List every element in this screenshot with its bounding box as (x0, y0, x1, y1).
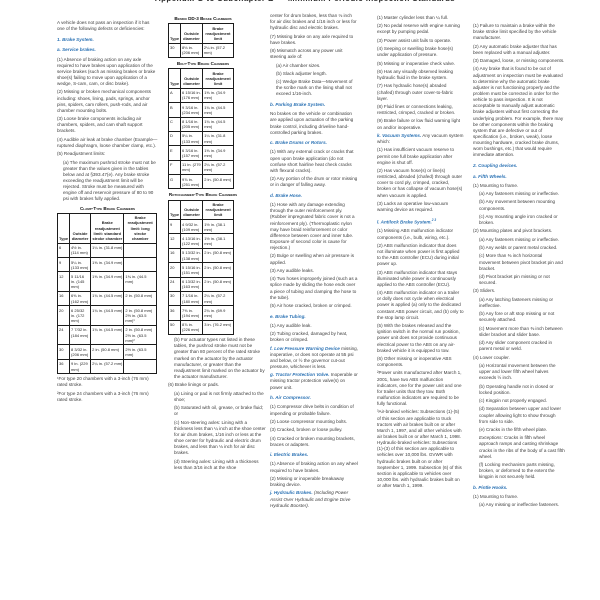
table-cell: 2 in. (50.8 mm) (91, 345, 124, 359)
data-table: TypeOutside diameterBrake readjustment l… (168, 68, 234, 189)
table-cell: B (169, 103, 181, 117)
table-cell: 1½ in. (38.1 mm) (203, 234, 234, 248)
table-row: 95¼ in. (133 mm)1⅜ in. (34.9 mm) (58, 258, 157, 272)
table-title: Bendix DD-3 Brake Chambers (168, 16, 238, 22)
table-cell: 1⅜ in. (34.9 mm) (91, 272, 124, 292)
table-row: A6 15/16 in. (176 mm)1⅜ in. (34.9 mm) (169, 88, 234, 102)
table-cell: 2 in. (50.8 mm) (203, 175, 234, 189)
paragraph: (c) Movement more than ⅜ inch between sl… (479, 326, 565, 338)
paragraph: (3) Lacks an operative low-vacuum warnin… (377, 201, 464, 213)
table-cell: 2¼ in. (57.2 mm) (91, 359, 124, 373)
table-cell: 8⅛ in. (206 mm) (181, 43, 203, 57)
table-cell: 7 7/32 in. (184 mm) (70, 325, 91, 345)
table-cell (124, 258, 157, 272)
paragraph: (1) Mounting to frame. (473, 494, 565, 500)
table-cell: 2¼ in. (57.2 mm) (202, 43, 233, 57)
paragraph: (1) Absence of braking action on any axl… (57, 57, 158, 88)
table-cell: 6 15/16 in. (176 mm) (181, 88, 203, 102)
table-cell: 2 in. (50.8 mm) 2½ in. (63.5 mm)² (124, 325, 157, 345)
paragraph: (a) Air chamber sizes. (276, 63, 358, 69)
paragraph: (1) Mounting to frame. (473, 183, 565, 189)
paragraph: (b) For actuator types not listed in the… (174, 337, 267, 380)
table-cell: 1⅜ in. (34.9 mm) (203, 88, 234, 102)
paragraph: (9) Brake failure or low fluid warning l… (377, 118, 464, 130)
paragraph: (4) Cracked or broken mounting brackets,… (270, 436, 358, 448)
table-cell: 1¾ in. (44.5 mm) (203, 103, 234, 117)
table-header-cell: Brake readjustment limit: long stroke ch… (124, 213, 157, 243)
table-header-row: TypeOutside diameterBrake readjustment l… (58, 213, 157, 243)
table-row: 166⅜ in. (162 mm)1¾ in. (44.5 mm)2 in. (… (58, 291, 157, 305)
section-heading: b. Parking Brake System. (270, 102, 358, 108)
paragraph: (a) Any fasteners missing or ineffective… (479, 191, 565, 197)
section-heading: 1. Brake System. (57, 37, 158, 43)
table-footnote: ³Air-braked vehicles: Subsections (1)-(5… (377, 409, 464, 489)
table-cell: 2¼ in. (57.2 mm) (203, 291, 234, 305)
table-row: 125 11/16 in. (145 mm)1⅜ in. (34.9 mm)1¾… (58, 272, 157, 292)
table-cell: 20 (169, 263, 181, 277)
table-title: Bolt-Type Brake Chambers (168, 61, 238, 67)
table-row: F11 in. (279 mm)2¼ in. (57.2 mm) (169, 160, 234, 174)
table-header-cell: Type (169, 200, 181, 220)
paragraph: (c) More than ⅜ inch horizontal movement… (479, 253, 565, 271)
table-header-cell: Brake readjustment limit (203, 200, 234, 220)
table-row: 165 13/32 in. (138 mm)2 in. (50.8 mm) (169, 248, 234, 262)
table-cell: A (169, 88, 181, 102)
paragraph: (c) Any mounting angle iron cracked or b… (479, 214, 565, 226)
table-cell: 20 (58, 306, 70, 326)
table-cell: 3 in. (76.2 mm) (203, 320, 234, 334)
paragraph: (4) Two hoses improperly joined (such as… (270, 276, 358, 301)
paragraph: (3) Power assist unit fails to operate. (377, 38, 464, 44)
paragraph: (1) Missing ABS malfunction indicator co… (377, 228, 464, 240)
table-row: 308⅛ in. (206 mm)2¼ in. (57.2 mm) (169, 43, 234, 57)
table-cell: 8⅞ in. (226 mm) (181, 320, 203, 334)
table-cell: 5 13/32 in. (138 mm) (181, 248, 203, 262)
paragraph: (b) Any fore or aft stop missing or not … (479, 311, 565, 323)
paragraph: (3) Sliders. (473, 288, 565, 294)
table-cell: 1⅜ in. (34.9 mm) (91, 258, 124, 272)
paragraph: (3) ABS malfunction indicator that stays… (377, 270, 464, 288)
paragraph: (4) Any brake that is found to be out of… (473, 66, 565, 158)
table-row: G9⅞ in. (251 mm)2 in. (50.8 mm) (169, 175, 234, 189)
table-cell: 2 in. (50.8 mm) (124, 291, 157, 305)
column-4: (1) Master cylinder less than ¼ full.(2)… (377, 0, 464, 491)
paragraph: (5) Air hose cracked, broken or crimped. (270, 303, 358, 309)
paragraph: (1) Any audible leak. (270, 323, 358, 329)
paragraph: (b) Slack adjuster length. (276, 71, 358, 77)
table-cell: 1¾ in. (44.5 mm) (91, 325, 124, 345)
table-cell: D (169, 131, 181, 145)
paragraph: (c) Kingpin not properly engaged. (479, 398, 565, 404)
paragraph: (c) Wedge Brake Data—Movement of the scr… (276, 79, 358, 97)
table-header-cell: Brake readjustment limit (203, 69, 234, 89)
paragraph: (8) Fluid lines or connections leaking, … (377, 104, 464, 116)
table-header-cell: Outside diameter (70, 213, 91, 243)
paragraph: (1) Absence of braking action on any whe… (270, 461, 358, 473)
table-header-row: TypeOutside diameterBrake readjustment l… (169, 69, 234, 89)
table-header-cell: Brake readjustment limit (202, 24, 233, 44)
paragraph: (3) Any audible leaks. (270, 268, 358, 274)
table-cell: 6 25/32 in. (172 mm) (70, 306, 91, 326)
table-cell: 16 (169, 248, 181, 262)
table-cell: 5 15/16 in. (151 mm) (181, 263, 203, 277)
paragraph: (1) Master cylinder less than ¼ full. (377, 15, 464, 21)
section-heading-inline: k. Vacuum Systems. (377, 133, 421, 138)
table-cell: 1½ in. (38.1 mm) (203, 220, 234, 234)
table-cell: E (169, 146, 181, 160)
paragraph: (a) Horizontal movement between the uppe… (479, 363, 565, 381)
table-cell: 9 in. (229 mm) (70, 359, 91, 373)
table-cell: 16 (58, 291, 70, 305)
footnote-marker: 2 3 (432, 218, 436, 222)
table-cell: 36 (58, 359, 70, 373)
table-cell: 2 in. (50.8 mm) (203, 263, 234, 277)
paragraph: (c) Non-steering axles: Lining with a th… (174, 420, 267, 457)
paragraph: (6) Other missing or inoperative ABS com… (377, 356, 464, 368)
table-cell: 50 (169, 320, 181, 334)
table-cell: 4 9/32 in. (109 mm) (181, 220, 203, 234)
table-footnote: ¹For type 20 chambers with a 3-inch (76 … (57, 376, 158, 388)
paragraph: (6) Has any visually observed leaking hy… (377, 69, 464, 81)
paragraph: (7) Has hydraulic hose(s) abraded (chafe… (377, 83, 464, 101)
table-row: 94 9/32 in. (109 mm)1½ in. (38.1 mm) (169, 220, 234, 234)
table-row: 367⅝ in. (194 mm)2¾ in. (69.9 mm) (169, 306, 234, 320)
table-cell: 9 (169, 220, 181, 234)
table-cell: 12 (169, 234, 181, 248)
table-cell: 6 3/16 in. (157 mm) (181, 146, 203, 160)
table-cell: F (169, 160, 181, 174)
table-title: Clamp-Type Brake Chambers (57, 206, 158, 212)
paragraph: j. Hydraulic Brakes. (Including Power As… (270, 490, 358, 508)
table-cell: 1¼ in. (31.8 mm) (91, 243, 124, 257)
paragraph: (8) Mismatch across any power unit steer… (270, 48, 358, 60)
table-cell: 2 in. (50.8 mm) (203, 248, 234, 262)
paragraph: (b) Operating handle not in closed or lo… (479, 384, 565, 396)
table-header-cell: Brake readjustment limit: standard strok… (91, 213, 124, 243)
table-cell: 2 in. (50.8 mm) (203, 277, 234, 291)
paragraph: (2) Missing or broken mechanical compone… (57, 89, 158, 114)
section-heading: 2. Coupling devices. (473, 163, 565, 169)
paragraph: (1) Has insufficient vacuum reserve to p… (377, 147, 464, 165)
table-cell (124, 243, 157, 257)
paragraph: (2) Missing or inoperable breakaway brak… (270, 476, 358, 488)
table-cell: C (169, 117, 181, 131)
paragraph: (5) Missing or inoperative check valve. (377, 61, 464, 67)
paragraph: (d) Separation between upper and lower c… (479, 406, 565, 424)
table-cell: 1¾ in. (44.5 mm) (91, 291, 124, 305)
section-heading-inline: g. Tractor Protection Valve. (270, 372, 329, 377)
table-row: 308 3/32 in. (206 mm)2 in. (50.8 mm)2½ i… (58, 345, 157, 359)
paragraph: (3) Loose brake components including air… (57, 116, 158, 134)
table-row: B9 3/16 in. (234 mm)1¾ in. (44.5 mm) (169, 103, 234, 117)
paragraph: (1) Compressor drive belts in condition … (270, 404, 358, 416)
table-cell: 9⅞ in. (251 mm) (181, 175, 203, 189)
table-cell: 6 (58, 243, 70, 257)
paragraph: (a) Lining or pad is not firmly attached… (174, 391, 267, 403)
table-cell: 1¼ in. (31.8 mm) (203, 131, 234, 145)
section-heading: l. Antilock Brake System.2 3 (377, 218, 464, 226)
paragraph: (1) Failure to maintain a brake within t… (473, 23, 565, 41)
paragraph: (b) Saturated with oil, grease, or brake… (174, 405, 267, 417)
table-cell: 7⅝ in. (194 mm) (181, 306, 203, 320)
table-row: 247 7/32 in. (184 mm)1¾ in. (44.5 mm)2 i… (58, 325, 157, 345)
paragraph: (f) Locking mechanism parts missing, bro… (479, 462, 565, 480)
exceptions-label: Exceptions: (479, 435, 503, 440)
table-cell: 9 (58, 258, 70, 272)
table-cell (124, 359, 157, 373)
column-1: A vehicle does not pass an inspection if… (57, 0, 158, 405)
table-cell: 8 3/32 in. (206 mm) (70, 345, 91, 359)
table-row: 64½ in. (114 mm)1¼ in. (31.8 mm) (58, 243, 157, 257)
paragraph: (4) Audible air leak at brake chamber (E… (57, 137, 158, 149)
table-row: 124 13/16 in. (122 mm)1½ in. (38.1 mm) (169, 234, 234, 248)
table-cell: 6 13/32 in. (163 mm) (181, 277, 203, 291)
section-heading: d. Brake Hose. (270, 193, 358, 199)
paragraph: k. Vacuum Systems. Any vacuum system whi… (377, 133, 464, 145)
section-heading: c. Brake Drums or Rotors. (270, 140, 358, 146)
paragraph: (2) Bulge or swelling when air pressure … (270, 253, 358, 265)
table-cell: 11 in. (279 mm) (181, 160, 203, 174)
data-table: TypeOutside diameterBrake readjustment l… (168, 23, 234, 58)
column-5: (1) Failure to maintain a brake within t… (473, 0, 565, 511)
table-cell: 9 3/16 in. (234 mm) (181, 103, 203, 117)
paragraph: Exceptions: Cracks in fifth wheel approa… (479, 435, 565, 460)
section-heading: b. Pintle Hooks. (473, 485, 565, 491)
table-cell: 1¾ in. (44.5 mm) (91, 306, 124, 326)
table-cell: 2½ in. (63.5 mm) (124, 345, 157, 359)
table-cell: 5¼ in. (133 mm) (70, 258, 91, 272)
paragraph: (b) Any movement between mounting compon… (479, 199, 565, 211)
data-table: TypeOutside diameterBrake readjustment l… (57, 213, 157, 375)
table-header-cell: Outside diameter (181, 69, 203, 89)
section-heading: a. Fifth Wheels. (473, 174, 565, 180)
paragraph: (1) Hose with any damage extending throu… (270, 202, 358, 251)
paragraph: (2) No pedal reserve with engine running… (377, 23, 464, 35)
table-footnote: ²For type 24 chambers with a 3-inch (76 … (57, 391, 158, 403)
table-cell: 1¾ in. (44.5 mm) (203, 117, 234, 131)
paragraph: (3) Cracked, broken or loose pulley. (270, 427, 358, 433)
table-cell: 5¼ in. (133 mm) (181, 131, 203, 145)
paragraph: (a) Any missing or ineffective fasteners… (479, 502, 565, 508)
table-cell: 36 (169, 306, 181, 320)
paragraph: (5) With the brakes released and the ign… (377, 323, 464, 354)
paragraph: No brakes on the vehicle or combination … (270, 111, 358, 136)
paragraph: (2) Mounting plates and pivot brackets. (473, 228, 565, 234)
table-cell: 4½ in. (114 mm) (70, 243, 91, 257)
paragraph: (e) Cracks in the fifth wheel plate. (479, 427, 565, 433)
paragraph: (2) Has vacuum hose(s) or line(s) restri… (377, 168, 464, 199)
table-header-cell: Outside diameter (181, 200, 203, 220)
section-heading: i. Electric Brakes. (270, 452, 358, 458)
table-row: 307 1/16 in. (180 mm)2¼ in. (57.2 mm) (169, 291, 234, 305)
table-cell: 2¼ in. (57.2 mm) (203, 160, 234, 174)
paragraph: (2) Any automatic brake adjuster that ha… (473, 44, 565, 56)
table-row: E6 3/16 in. (157 mm)1⅜ in. (34.9 mm) (169, 146, 234, 160)
table-row: C8 1/16 in. (205 mm)1¾ in. (44.5 mm) (169, 117, 234, 131)
section-heading: e. Brake Tubing. (270, 314, 358, 320)
paragraph: (a) Any latching fasteners missing or in… (479, 297, 565, 309)
table-cell: 30 (169, 291, 181, 305)
section-heading: a. Service brakes. (57, 47, 158, 53)
column-2: Bendix DD-3 Brake ChambersTypeOutside di… (168, 0, 267, 473)
paragraph: g. Tractor Protection Valve. Inoperable … (270, 372, 358, 390)
paragraph: center for drum brakes, less than ⅛ inch… (270, 13, 358, 31)
table-cell: 7 1/16 in. (180 mm) (181, 291, 203, 305)
table-row: 206 25/32 in. (172 mm)1¾ in. (44.5 mm)2 … (58, 306, 157, 326)
column-3: center for drum brakes, less than ⅛ inch… (270, 0, 358, 511)
table-cell: 1¾ in. (44.5 mm) (124, 272, 157, 292)
section-heading-inline: f. Low Pressure Warning Device (270, 346, 340, 351)
paragraph: (2) ABS malfunction indicator that does … (377, 243, 464, 268)
paragraph: (d) Pivot bracket pin missing or not sec… (479, 274, 565, 286)
table-header-cell: Type (58, 213, 70, 243)
table-cell: 24 (58, 325, 70, 345)
table-cell: 6⅜ in. (162 mm) (70, 291, 91, 305)
paragraph: (4) ABS malfunction indicator on a trail… (377, 290, 464, 321)
data-table: TypeOutside diameterBrake readjustment l… (168, 200, 234, 336)
paragraph: (a) Any fasteners missing or ineffective… (479, 237, 565, 243)
paragraph: (3) Damaged, loose, or missing component… (473, 58, 565, 64)
section-heading: h. Air Compressor. (270, 395, 358, 401)
table-cell: 30 (169, 43, 181, 57)
table-row: D5¼ in. (133 mm)1¼ in. (31.8 mm) (169, 131, 234, 145)
paragraph: (1) With any external crack or cracks th… (270, 149, 358, 174)
paragraph: (5) Readjustment limits: (57, 151, 158, 157)
table-cell: 4 13/16 in. (122 mm) (181, 234, 203, 248)
paragraph: (2) Loose compressor mounting bolts. (270, 419, 358, 425)
table-cell: 2 in. (50.8 mm) 2½ in. (63.5 mm)¹ (124, 306, 157, 326)
paragraph: (4) Seeping or swelling brake hose(s) un… (377, 46, 464, 58)
table-row: 205 15/16 in. (151 mm)2 in. (50.8 mm) (169, 263, 234, 277)
paragraph: (a) The maximum pushrod stroke must not … (63, 160, 158, 203)
table-cell: 2¾ in. (69.9 mm) (203, 306, 234, 320)
document-page: Appendix G to Subchapter B — Minimum Per… (0, 0, 600, 600)
paragraph: (d) Any slider component cracked in pare… (479, 340, 565, 352)
table-footnote: ²Power units manufactured after March 1,… (377, 370, 464, 407)
paragraph: (b) Any welds or parent metal cracked. (479, 245, 565, 251)
table-cell: 30 (58, 345, 70, 359)
table-header-row: TypeOutside diameterBrake readjustment l… (169, 200, 234, 220)
table-cell: G (169, 175, 181, 189)
paragraph: (d) Steering axles: Lining with a thickn… (174, 459, 267, 471)
paragraph: (4) Lower coupler. (473, 355, 565, 361)
paragraph: (2) Any portion of the drum or rotor mis… (270, 176, 358, 188)
paragraph: (2) Tubing cracked, damaged by heat, bro… (270, 331, 358, 343)
table-cell: 1⅜ in. (34.9 mm) (203, 146, 234, 160)
table-header-cell: Outside diameter (181, 24, 203, 44)
table-cell: 24 (169, 277, 181, 291)
paragraph: (7) Missing brake on any axle required t… (270, 34, 358, 46)
table-title: Rotochamber-Type Brake Chambers (168, 192, 238, 198)
table-cell: 8 1/16 in. (205 mm) (181, 117, 203, 131)
table-cell: 5 11/16 in. (145 mm) (70, 272, 91, 292)
table-row: 369 in. (229 mm)2¼ in. (57.2 mm) (58, 359, 157, 373)
table-header-cell: Type (169, 24, 181, 44)
table-header-row: TypeOutside diameterBrake readjustment l… (169, 24, 234, 44)
section-heading-inline: j. Hydraulic Brakes. (270, 490, 313, 495)
paragraph: A vehicle does not pass an inspection if… (57, 20, 158, 32)
table-row: 508⅞ in. (226 mm)3 in. (76.2 mm) (169, 320, 234, 334)
paragraph: f. Low Pressure Warning Device missing, … (270, 346, 358, 371)
table-header-cell: Type (169, 69, 181, 89)
table-cell: 12 (58, 272, 70, 292)
table-row: 246 13/32 in. (163 mm)2 in. (50.8 mm) (169, 277, 234, 291)
paragraph: (6) Brake linings or pads. (168, 382, 267, 388)
